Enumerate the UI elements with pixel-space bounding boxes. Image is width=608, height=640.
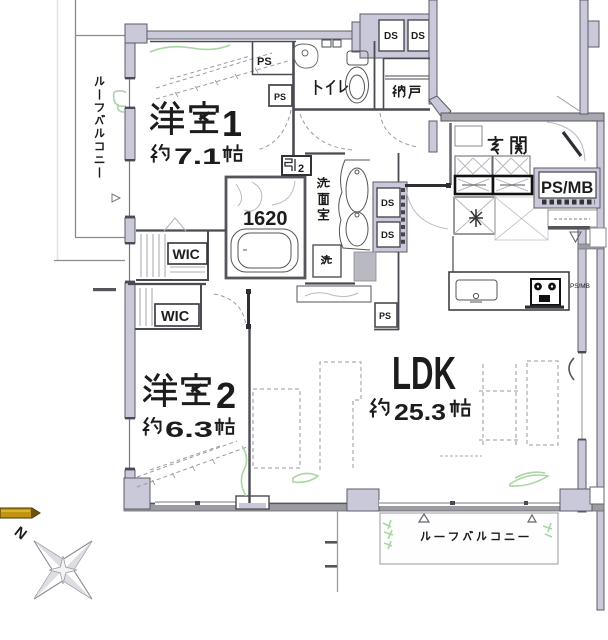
svg-text:2: 2	[216, 375, 236, 416]
svg-text:2: 2	[298, 163, 304, 175]
svg-text:LDK: LDK	[392, 347, 456, 399]
svg-text:6.3: 6.3	[165, 417, 213, 442]
svg-text:DS: DS	[381, 230, 394, 241]
svg-text:PS: PS	[274, 92, 286, 102]
svg-text:DS: DS	[411, 31, 425, 42]
svg-text:PS: PS	[379, 311, 391, 321]
svg-text:DS: DS	[384, 31, 398, 42]
svg-text:PS/MB: PS/MB	[541, 179, 593, 197]
svg-text:1: 1	[222, 103, 242, 144]
svg-text:WIC: WIC	[173, 246, 200, 262]
svg-text:WIC: WIC	[161, 309, 190, 325]
svg-text:25.3: 25.3	[394, 399, 446, 425]
svg-text:PS: PS	[257, 56, 272, 68]
svg-text:PS/MB: PS/MB	[570, 283, 590, 290]
svg-text:DS: DS	[381, 198, 394, 209]
svg-text:7.1: 7.1	[174, 144, 221, 169]
